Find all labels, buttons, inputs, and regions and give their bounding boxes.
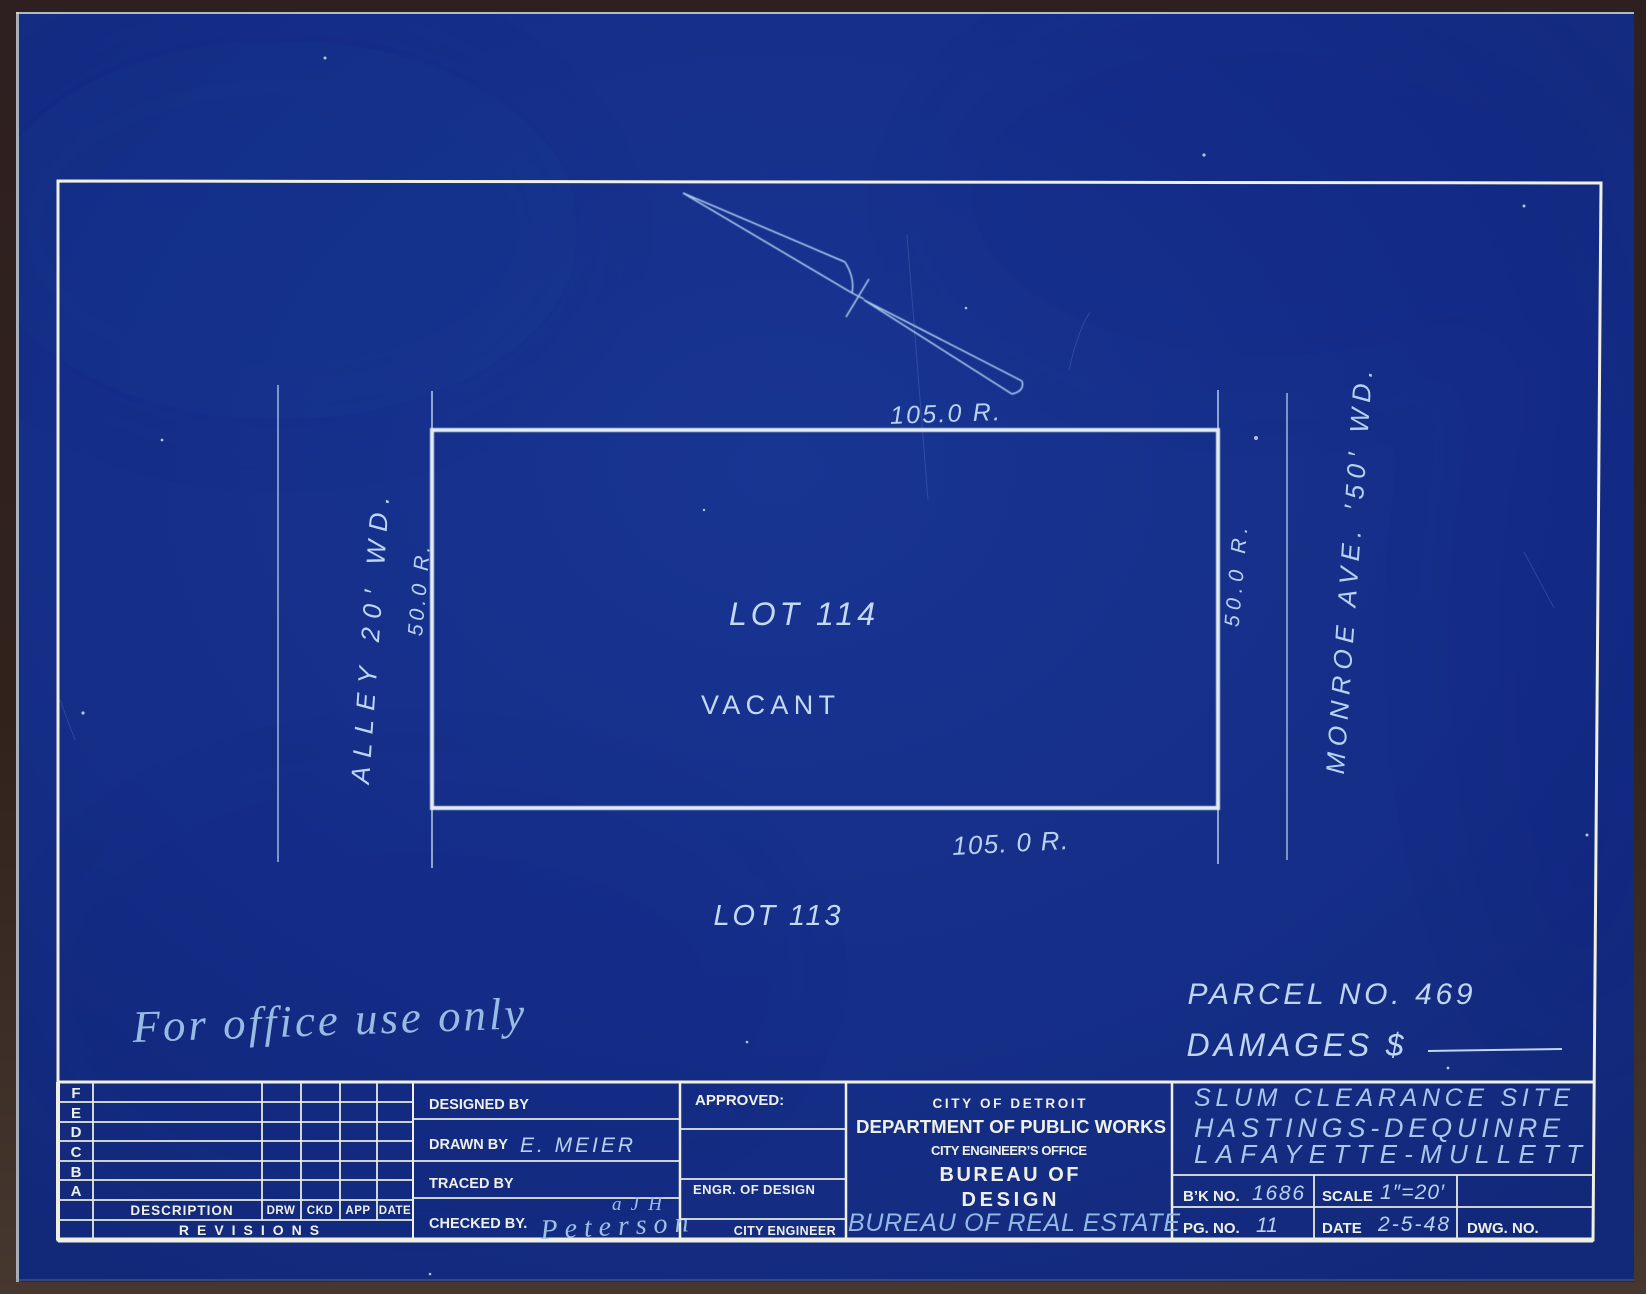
svg-text:APP: APP	[345, 1205, 370, 1217]
svg-text:aJH: aJH	[612, 1194, 663, 1215]
svg-text:11: 11	[1256, 1214, 1278, 1237]
svg-text:REVISIONS: REVISIONS	[179, 1222, 327, 1238]
svg-text:B’K NO.: B’K NO.	[1183, 1188, 1240, 1205]
svg-text:1686: 1686	[1252, 1182, 1304, 1205]
svg-text:A: A	[71, 1183, 82, 1200]
svg-text:BUREAU OF REAL ESTATE: BUREAU OF REAL ESTATE	[848, 1209, 1180, 1237]
svg-text:DRW: DRW	[267, 1205, 296, 1217]
svg-text:SCALE: SCALE	[1322, 1188, 1373, 1205]
svg-text:TRACED BY: TRACED BY	[429, 1176, 514, 1192]
svg-text:DWG. NO.: DWG. NO.	[1467, 1220, 1539, 1237]
svg-text:DRAWN BY: DRAWN BY	[429, 1137, 508, 1153]
svg-text:APPROVED:: APPROVED:	[695, 1092, 784, 1109]
svg-text:105. 0 R.: 105. 0 R.	[951, 825, 1068, 861]
svg-text:DEPARTMENT OF PUBLIC WORKS: DEPARTMENT OF PUBLIC WORKS	[856, 1117, 1166, 1137]
svg-text:DESIGN: DESIGN	[962, 1189, 1057, 1211]
svg-text:ENGR. OF DESIGN: ENGR. OF DESIGN	[693, 1182, 815, 1197]
svg-text:D: D	[71, 1124, 82, 1141]
svg-text:CHECKED BY.: CHECKED BY.	[429, 1216, 527, 1232]
svg-text:F: F	[71, 1085, 80, 1102]
svg-text:SLUM CLEARANCE SITE: SLUM CLEARANCE SITE	[1194, 1084, 1570, 1112]
svg-text:E: E	[71, 1105, 81, 1122]
svg-text:B: B	[71, 1164, 82, 1181]
svg-text:C: C	[71, 1144, 82, 1161]
svg-text:LAFAYETTE-MULLETT: LAFAYETTE-MULLETT	[1194, 1139, 1584, 1169]
svg-text:CITY ENGINEER: CITY ENGINEER	[734, 1224, 836, 1238]
svg-text:BUREAU OF: BUREAU OF	[940, 1164, 1079, 1186]
svg-text:1″=20′: 1″=20′	[1380, 1181, 1445, 1204]
svg-text:PG. NO.: PG. NO.	[1183, 1220, 1240, 1237]
svg-text:CITY ENGINEER’S OFFICE: CITY ENGINEER’S OFFICE	[931, 1143, 1087, 1158]
svg-text:DATE: DATE	[379, 1205, 411, 1217]
svg-text:DESCRIPTION: DESCRIPTION	[130, 1203, 233, 1218]
svg-text:DATE: DATE	[1322, 1220, 1362, 1237]
svg-text:CKD: CKD	[307, 1205, 333, 1217]
svg-text:DESIGNED BY: DESIGNED BY	[429, 1097, 529, 1113]
